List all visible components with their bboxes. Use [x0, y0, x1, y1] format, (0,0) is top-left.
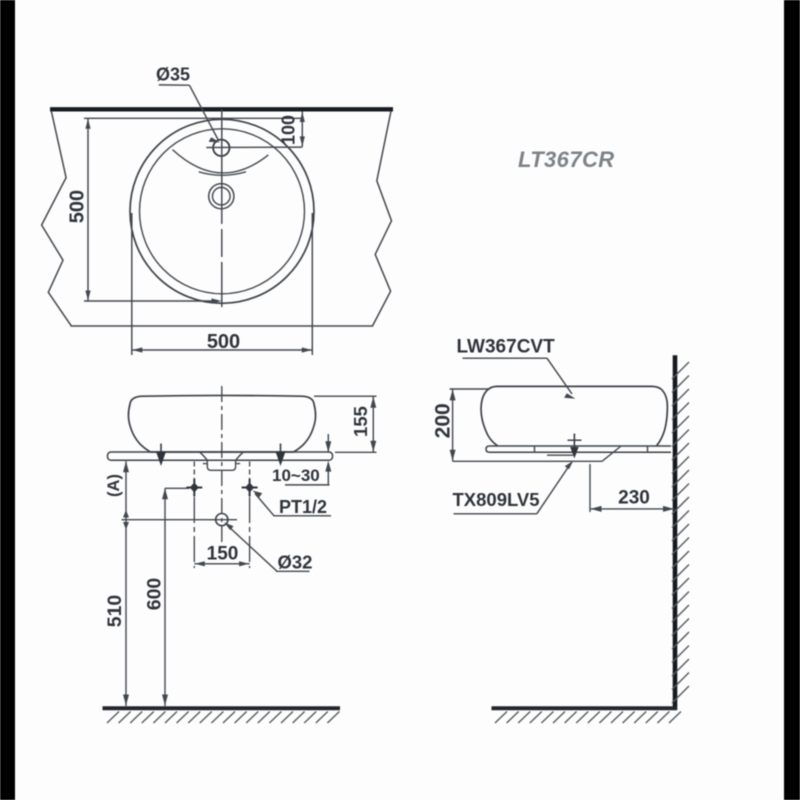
svg-text:150: 150	[207, 544, 239, 565]
svg-text:510: 510	[104, 595, 126, 628]
svg-text:600: 600	[144, 578, 166, 611]
svg-text:PT1/2: PT1/2	[279, 497, 327, 517]
svg-text:(A): (A)	[105, 474, 123, 497]
svg-text:LT367CR: LT367CR	[518, 147, 615, 172]
svg-text:230: 230	[618, 488, 650, 509]
svg-text:TX809LV5: TX809LV5	[453, 489, 540, 510]
svg-text:10~30: 10~30	[272, 466, 320, 485]
svg-text:100: 100	[278, 115, 298, 145]
svg-text:LW367CVT: LW367CVT	[457, 337, 556, 358]
svg-text:Ø35: Ø35	[156, 65, 190, 85]
svg-text:200: 200	[432, 403, 455, 438]
svg-text:500: 500	[207, 331, 240, 353]
svg-text:500: 500	[66, 190, 88, 223]
svg-text:Ø32: Ø32	[278, 552, 313, 573]
svg-text:155: 155	[350, 406, 371, 437]
